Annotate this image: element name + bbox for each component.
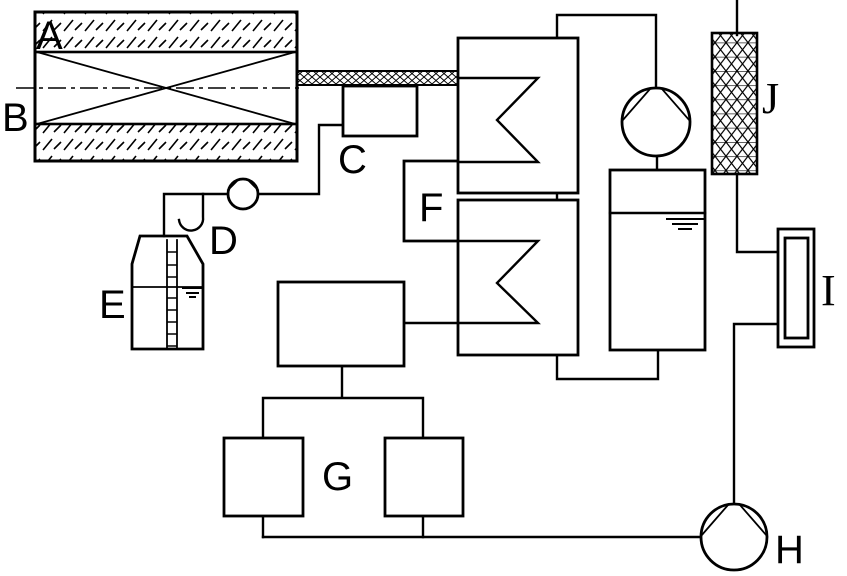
label-c: C: [338, 138, 367, 182]
furnace-insulation-bottom: [35, 124, 297, 161]
packed-column: J: [712, 33, 779, 174]
pipe-meter-to-pump: [734, 324, 779, 506]
label-b: B: [2, 96, 29, 140]
water-tank: [610, 170, 705, 350]
sight-glass-graduations: [167, 252, 177, 346]
furnace-insulation-top: [35, 12, 297, 52]
drip-hook: [179, 194, 203, 231]
graduated-vessel: E: [99, 236, 203, 349]
label-e: E: [99, 283, 126, 327]
circulation-pump-upper: [622, 88, 690, 156]
control-box: [278, 282, 404, 366]
label-j: J: [762, 74, 779, 123]
label-i: I: [821, 266, 836, 315]
lower-heat-exchanger: [458, 200, 578, 355]
schematic-canvas: A B C D E F: [0, 0, 847, 576]
furnace-assembly: A B: [2, 12, 302, 161]
label-g: G: [322, 455, 353, 499]
label-a: A: [36, 14, 63, 58]
circulation-pump-lower: H: [701, 504, 804, 572]
pipe-column-to-meter: [737, 174, 779, 252]
heated-transfer-tube: [297, 71, 458, 85]
label-d: D: [209, 219, 238, 263]
flow-meter: I: [778, 229, 836, 347]
upper-heat-exchanger: [458, 38, 578, 193]
tank-shell: [610, 170, 705, 350]
pipe-g-manifold: [263, 366, 423, 438]
packed-column-body: [712, 33, 757, 174]
process-flow-schematic: A B C D E F: [0, 0, 847, 576]
c-box: [343, 86, 417, 136]
sight-glass-column: [167, 240, 177, 349]
transfer-tube: [297, 71, 458, 85]
g-right-box: [385, 438, 463, 516]
g-left-box: [224, 438, 303, 516]
label-f: F: [419, 186, 443, 230]
lower-pump-circle: [701, 504, 767, 570]
small-pump-circle: [228, 179, 258, 209]
label-h: H: [775, 528, 804, 572]
pipe-g-drops: [263, 516, 423, 537]
upper-hx-shell: [458, 38, 578, 193]
upper-pump-circle: [622, 88, 690, 156]
connecting-duct-f: F: [404, 161, 458, 241]
lower-hx-shell: [458, 200, 578, 355]
small-pump: D: [209, 179, 258, 263]
liquid-level-mark: [182, 288, 203, 297]
